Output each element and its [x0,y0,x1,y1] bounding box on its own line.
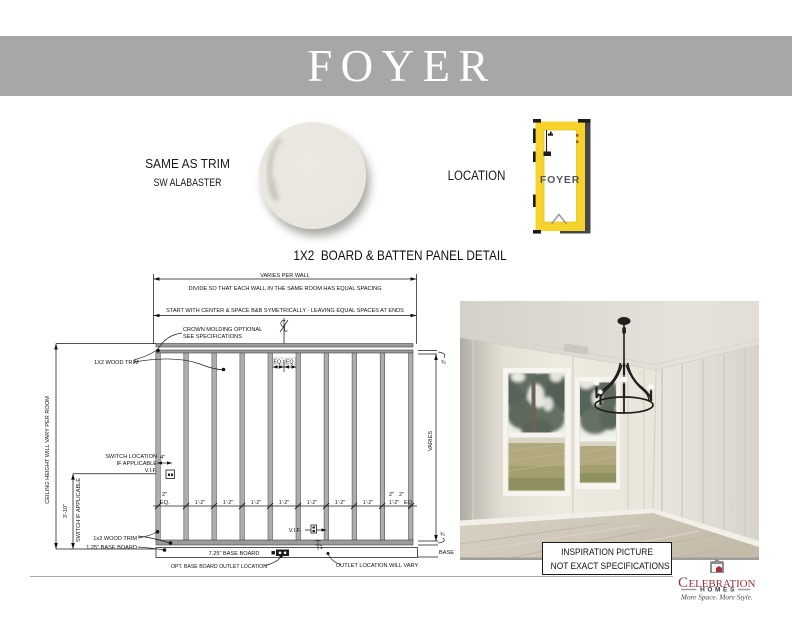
svg-text:1'-2": 1'-2" [335,500,345,506]
svg-text:2": 2" [389,492,394,498]
svg-text:1'-2": 1'-2" [363,500,373,506]
svg-text:1.25" BASE BOARD: 1.25" BASE BOARD [86,545,137,551]
svg-text:EQ.: EQ. [160,500,170,506]
svg-text:SWITCH LOCATION: SWITCH LOCATION [105,454,157,460]
svg-text:EQ.: EQ. [404,500,414,506]
svg-text:OUTLET LOCATION WILL VARY: OUTLET LOCATION WILL VARY [336,563,419,569]
svg-text:3'-10": 3'-10" [63,504,69,518]
svg-text:2": 2" [399,492,404,498]
svg-text:¾: ¾ [441,360,446,366]
svg-text:EQ.: EQ. [286,360,295,366]
svg-text:VARIES PER WALL: VARIES PER WALL [260,273,310,279]
svg-text:1x2 WOOD TRIM: 1x2 WOOD TRIM [93,536,137,542]
svg-text:1'-2": 1'-2" [223,500,233,506]
svg-text:More Space. More Style.: More Space. More Style. [680,593,753,602]
svg-text:1: 1 [320,545,323,551]
svg-text:C: C [678,575,688,591]
svg-text:V.I.F.: V.I.F. [145,468,158,474]
svg-text:CEILING HEIGHT WILL VARY PER R: CEILING HEIGHT WILL VARY PER ROOM [45,396,51,504]
svg-text:7.25" BASE BOARD: 7.25" BASE BOARD [209,551,260,557]
svg-text:EQ.: EQ. [274,360,283,366]
svg-text:1'-2": 1'-2" [389,500,399,506]
svg-text:1'-2": 1'-2" [251,500,261,506]
svg-text:4": 4" [160,455,165,461]
svg-text:SEE SPECIFICATIONS: SEE SPECIFICATIONS [183,334,242,340]
svg-text:DIVIDE SO THAT EACH WALL IN TH: DIVIDE SO THAT EACH WALL IN THE SAME ROO… [188,286,381,292]
svg-text:1'-2": 1'-2" [195,500,205,506]
svg-text:CROWN MOLDING OPTIONAL: CROWN MOLDING OPTIONAL [183,327,262,333]
svg-text:1X2 WOOD TRIM: 1X2 WOOD TRIM [94,360,139,366]
svg-text:SWITCH IF APPLICABLE: SWITCH IF APPLICABLE [76,478,82,542]
svg-text:¾: ¾ [440,532,445,538]
svg-text:START WITH CENTER & SPACE B&B: START WITH CENTER & SPACE B&B SYMETRICAL… [166,308,404,314]
svg-text:VARIES: VARIES [428,431,434,451]
svg-text:IF APPLICABLE: IF APPLICABLE [117,461,158,467]
svg-text:OPT. BASE BOARD OUTLET LOCATIO: OPT. BASE BOARD OUTLET LOCATION [171,564,267,570]
svg-text:V.I.F.: V.I.F. [289,528,302,534]
svg-text:1'-2": 1'-2" [307,500,317,506]
svg-text:1'-2": 1'-2" [279,500,289,506]
svg-text:2": 2" [162,492,167,498]
svg-text:BASE: BASE [439,550,454,556]
